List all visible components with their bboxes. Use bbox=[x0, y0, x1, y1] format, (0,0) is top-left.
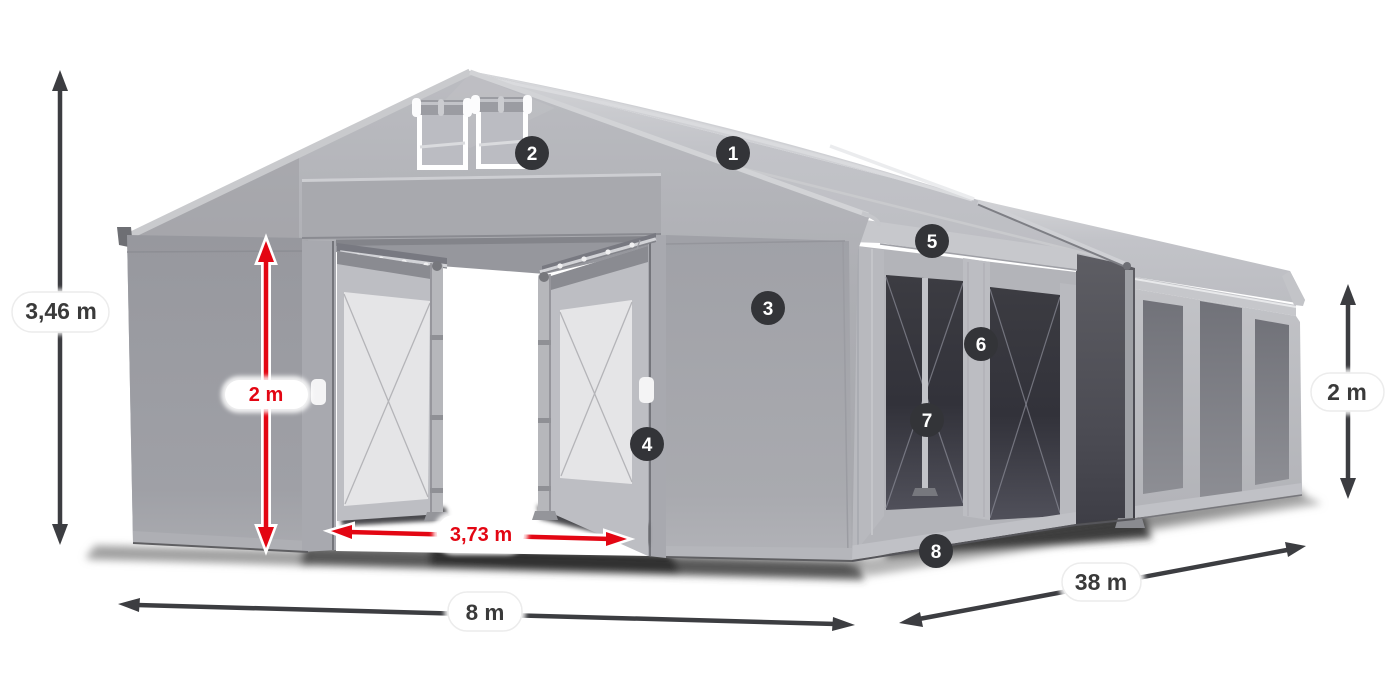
svg-text:8 m: 8 m bbox=[466, 600, 505, 625]
svg-text:8: 8 bbox=[931, 542, 942, 563]
svg-text:6: 6 bbox=[976, 335, 987, 356]
svg-text:5: 5 bbox=[927, 232, 938, 253]
svg-text:2 m: 2 m bbox=[1327, 379, 1367, 405]
svg-text:3,46 m: 3,46 m bbox=[25, 298, 97, 324]
svg-text:3: 3 bbox=[763, 299, 774, 320]
svg-text:38 m: 38 m bbox=[1075, 569, 1127, 595]
svg-text:4: 4 bbox=[642, 435, 653, 456]
svg-text:7: 7 bbox=[922, 411, 933, 432]
svg-text:2 m: 2 m bbox=[249, 384, 283, 406]
svg-text:3,73 m: 3,73 m bbox=[450, 524, 512, 546]
svg-text:1: 1 bbox=[728, 144, 739, 165]
svg-text:2: 2 bbox=[527, 144, 538, 165]
